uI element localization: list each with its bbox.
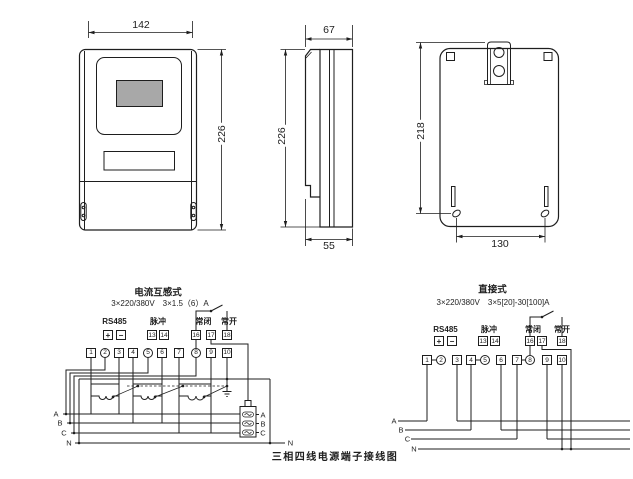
direct-neutral-label: N: [411, 445, 416, 453]
ct-fuse-out-c-label: C: [260, 429, 265, 437]
hanger-hole-bottom: [494, 66, 505, 77]
ct-phase-c-label: C: [61, 429, 66, 437]
ct-rs485-label: RS485: [102, 318, 126, 326]
ct-pulse-label: 脉冲: [150, 318, 166, 326]
side-view: [281, 25, 353, 246]
ct-terminal-3: 3: [114, 348, 124, 358]
left-seal-screw: [81, 203, 86, 221]
direct-terminal-9: 9: [542, 355, 552, 365]
ct-diagram-title: 电流互感式: [134, 288, 182, 298]
ct-neutral-out-label: N: [288, 439, 293, 447]
drawing-caption: 三相四线电源端子接线图: [272, 453, 399, 463]
back-right-screw-hole: [540, 209, 550, 218]
ct-rs485-minus-terminal: −: [116, 330, 126, 340]
side-body-outline: [320, 50, 353, 228]
ct-terminal-16: 16: [191, 330, 201, 340]
direct-terminal-5: 5: [480, 355, 490, 365]
left-seal-screw-hole-1: [82, 206, 85, 209]
ct-terminal-7: 7: [174, 348, 184, 358]
dimension-arrowheads: [89, 31, 546, 241]
hanger-inner-lines: [491, 49, 508, 84]
ct-rs485-plus-terminal: +: [103, 330, 113, 340]
front-view: [80, 21, 227, 230]
hanger-feet: [485, 81, 514, 85]
ct-wiring-diagram: [63, 305, 285, 443]
secondary-earth-links: [113, 386, 227, 397]
direct-terminal-8: 8: [525, 355, 535, 365]
right-seal-screw-hole-2: [192, 214, 195, 217]
direct-terminal-1: 1: [422, 355, 432, 365]
nameplate-window: [104, 152, 175, 171]
direct-no-label: 常开: [554, 326, 570, 334]
direct-nc-label: 常闭: [525, 326, 541, 334]
ct-primary-legs: [91, 357, 211, 433]
back-left-square: [447, 53, 455, 61]
direct-terminal-17: 17: [537, 336, 547, 346]
meter-body-outline: [80, 50, 197, 231]
ct-phase-b-label: B: [57, 419, 62, 427]
meter-body-side-edges: [85, 51, 192, 230]
direct-phase-a-label: A: [391, 417, 396, 425]
back-view: [416, 42, 559, 243]
ct-terminal-4: 4: [128, 348, 138, 358]
ct-terminal-17: 17: [206, 330, 216, 340]
phase-in-wires: [398, 365, 630, 450]
right-seal-screw-hole-1: [192, 206, 195, 209]
direct-terminal-2: 2: [436, 355, 446, 365]
ct-terminal-13: 13: [147, 330, 157, 340]
ct-neutral-label: N: [66, 439, 71, 447]
side-face-profile: [306, 50, 321, 198]
direct-pulse-label: 脉冲: [481, 326, 497, 334]
fuse-box-top-terminal: [245, 401, 251, 407]
side-depth-dim: 67: [321, 25, 337, 36]
side-base-depth-dim: 55: [321, 241, 337, 252]
ct-terminal-8: 8: [191, 348, 201, 358]
side-body-inner-lines: [330, 50, 335, 228]
direct-terminal-3: 3: [452, 355, 462, 365]
front-width-dim: 142: [130, 20, 152, 31]
ct-fuse-out-a-label: A: [260, 411, 265, 419]
direct-rs485-minus-terminal: −: [447, 336, 457, 346]
ct-terminal-10: 10: [222, 348, 232, 358]
direct-diagram-title: 直接式: [478, 285, 507, 295]
direct-rs485-plus-terminal: +: [434, 336, 444, 346]
ct-terminal-2: 2: [100, 348, 110, 358]
ct-fuse-out-b-label: B: [260, 420, 265, 428]
ct-nc-label: 常闭: [196, 318, 212, 326]
front-height-dim: 226: [216, 123, 227, 145]
direct-phase-c-label: C: [405, 435, 410, 443]
side-height-dim: 226: [277, 125, 288, 147]
linework: [0, 0, 633, 479]
back-right-slot: [545, 187, 549, 207]
direct-terminal-10: 10: [557, 355, 567, 365]
direct-terminal-18: 18: [557, 336, 567, 346]
ct-terminal-14: 14: [159, 330, 169, 340]
ct-no-label: 常开: [221, 318, 237, 326]
ct-terminal-5: 5: [143, 348, 153, 358]
ct-phase-a-label: A: [53, 410, 58, 418]
load-out-wires: [457, 365, 630, 440]
direct-terminal-16: 16: [525, 336, 535, 346]
ct-secondary-coils: [91, 396, 211, 400]
neutral-wires: [79, 357, 270, 443]
left-seal-screw-hole-2: [82, 214, 85, 217]
meter-technical-drawing: 142 226 67 226 55 218 130 电流互感式 3×220/38…: [0, 0, 633, 479]
direct-terminal-6: 6: [496, 355, 506, 365]
ct-terminal-9: 9: [206, 348, 216, 358]
ct-terminal-18: 18: [222, 330, 232, 340]
direct-terminal-13: 13: [478, 336, 488, 346]
back-left-slot: [452, 187, 456, 207]
back-body-outline: [440, 49, 559, 227]
direct-phase-b-label: B: [398, 426, 403, 434]
voltage-tap-wires: [66, 357, 196, 433]
back-mount-width-dim: 130: [489, 239, 511, 250]
direct-terminal-14: 14: [490, 336, 500, 346]
direct-rs485-label: RS485: [433, 326, 457, 334]
ct-diagram-spec: 3×220/380V 3×1.5（6）A: [111, 300, 208, 308]
direct-terminal-7: 7: [512, 355, 522, 365]
fuse-elements: [245, 414, 252, 434]
back-right-square: [544, 53, 552, 61]
direct-terminal-4: 4: [466, 355, 476, 365]
back-mount-height-dim: 218: [415, 120, 426, 142]
ct-terminal-6: 6: [157, 348, 167, 358]
phase-bus-lines: [63, 414, 285, 443]
direct-diagram-spec: 3×220/380V 3×5[20]-30[100]A: [437, 299, 550, 307]
ct-terminal-1: 1: [86, 348, 96, 358]
back-left-screw-hole: [451, 209, 461, 218]
lcd-screen: [117, 81, 163, 107]
